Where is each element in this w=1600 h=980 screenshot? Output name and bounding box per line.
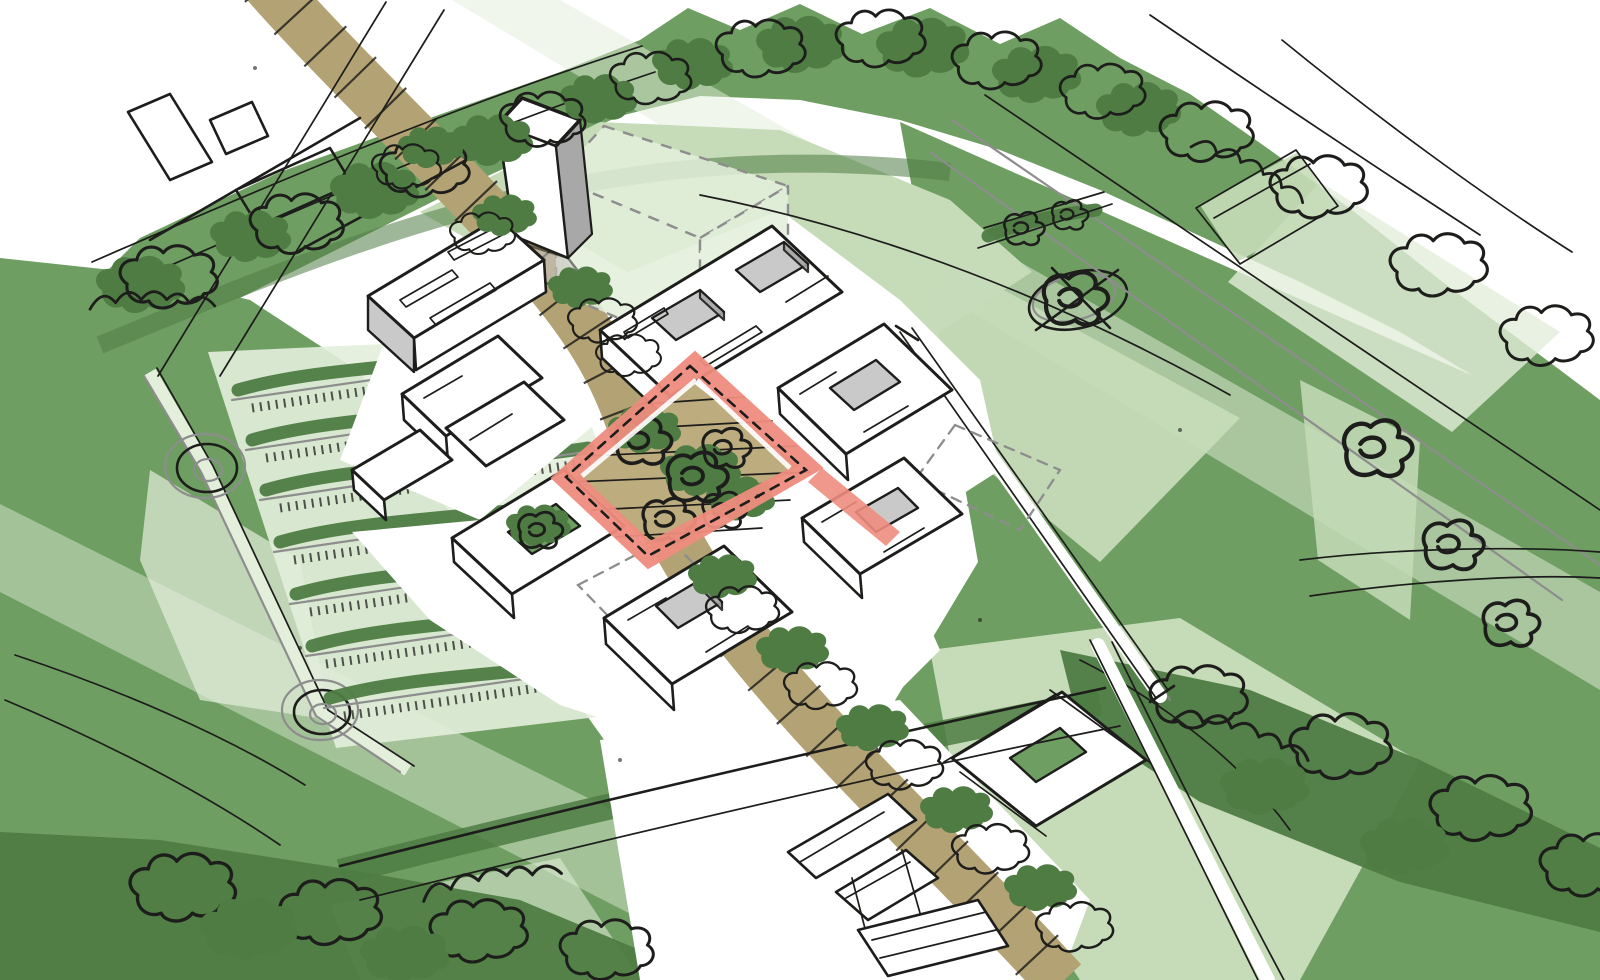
masterplan-sketch: Hand-drawn masterplan sketch: campus of … — [0, 0, 1600, 980]
sketch-canvas: Hand-drawn masterplan sketch: campus of … — [0, 0, 1600, 980]
